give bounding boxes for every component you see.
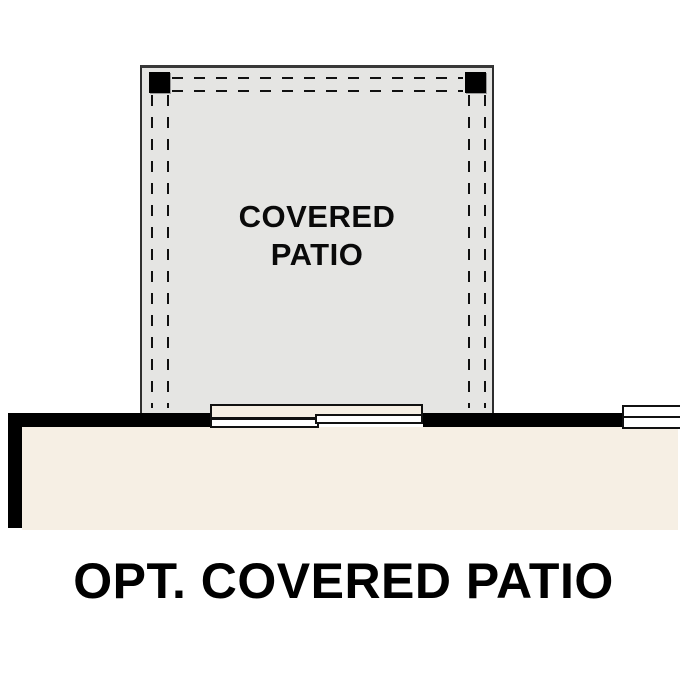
window-symbol [622, 405, 680, 429]
roof-dash-line-right-1 [468, 95, 470, 408]
patio-post-left [149, 72, 170, 93]
house-wall-corner-left [8, 413, 22, 528]
patio-label: COVERED PATIO [207, 198, 427, 274]
roof-dash-line-right-2 [484, 95, 486, 408]
roof-dash-line-top-2 [172, 90, 463, 92]
window-mullion-line [624, 416, 680, 418]
roof-dash-line-left-2 [167, 95, 169, 408]
floor-plan-canvas: COVERED PATIO OPT. COVERED PATIO [0, 0, 687, 687]
house-interior-area [22, 427, 678, 530]
patio-post-right [465, 72, 486, 93]
roof-dash-line-top-1 [172, 77, 463, 79]
house-wall-right-segment [423, 413, 622, 427]
plan-caption: OPT. COVERED PATIO [0, 552, 687, 610]
sliding-door-panel-left [210, 418, 319, 428]
sliding-door-panel-right [315, 414, 423, 424]
house-wall-left-segment [8, 413, 210, 427]
roof-dash-line-left-1 [151, 95, 153, 408]
